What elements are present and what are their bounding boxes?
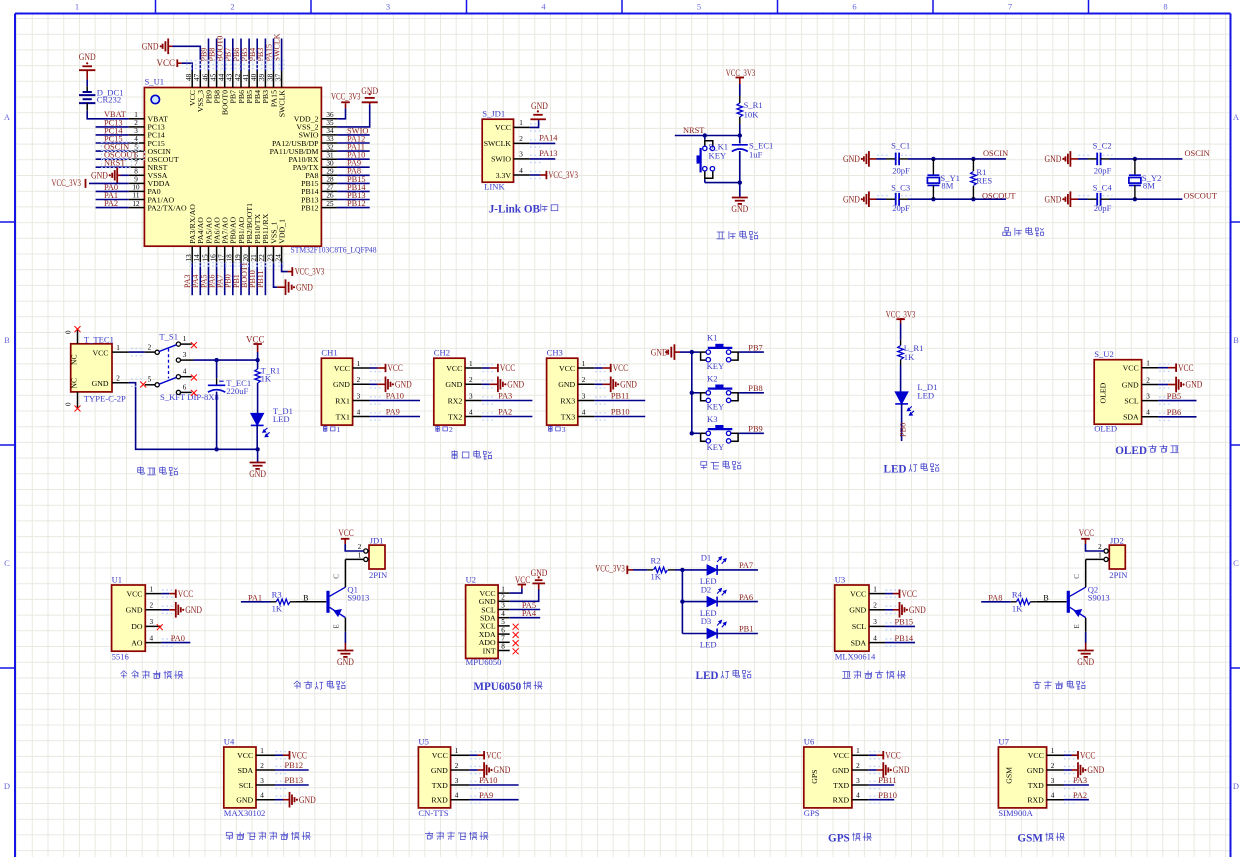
svg-text:2: 2 (134, 119, 138, 127)
svg-text:SWCLK: SWCLK (272, 33, 281, 61)
svg-text:PA3: PA3 (1073, 776, 1087, 785)
svg-text:46: 46 (201, 73, 209, 81)
svg-text:40: 40 (250, 73, 258, 81)
svg-text:12: 12 (132, 200, 140, 208)
svg-text:45: 45 (209, 73, 217, 81)
svg-text:4: 4 (856, 792, 860, 800)
svg-text:2: 2 (357, 376, 361, 384)
svg-text:22: 22 (258, 254, 266, 262)
svg-text:4: 4 (501, 610, 505, 618)
svg-text:VDD_1: VDD_1 (277, 219, 286, 244)
svg-text:PB0: PB0 (898, 423, 907, 437)
svg-text:43: 43 (226, 73, 234, 81)
svg-text:GND: GND (909, 605, 926, 615)
svg-text:VCC: VCC (902, 589, 917, 599)
svg-text:OLED: OLED (1115, 445, 1147, 457)
svg-text:S_U1: S_U1 (145, 77, 165, 87)
svg-text:2: 2 (449, 425, 453, 434)
svg-text:PA3: PA3 (498, 392, 512, 401)
svg-text:U5: U5 (418, 737, 429, 747)
svg-text:SWIO: SWIO (491, 155, 511, 164)
svg-text:SDA: SDA (851, 638, 867, 647)
svg-text:GND: GND (236, 796, 253, 805)
svg-text:PB10: PB10 (878, 791, 897, 800)
svg-text:1: 1 (582, 360, 586, 368)
svg-text:1: 1 (358, 551, 362, 559)
svg-text:6: 6 (852, 2, 856, 12)
svg-text:2: 2 (582, 376, 586, 384)
svg-text:2: 2 (455, 762, 459, 770)
svg-text:3: 3 (260, 777, 264, 785)
svg-text:19: 19 (234, 254, 242, 262)
svg-text:1: 1 (519, 119, 523, 127)
svg-text:LED: LED (696, 670, 719, 682)
svg-text:A: A (1233, 112, 1240, 122)
svg-text:3: 3 (519, 151, 523, 159)
svg-text:11: 11 (133, 192, 140, 200)
svg-text:D1: D1 (701, 553, 712, 563)
svg-text:S_KFT DIP-8X8: S_KFT DIP-8X8 (160, 392, 219, 402)
svg-text:36: 36 (326, 111, 334, 119)
svg-text:GND: GND (79, 52, 96, 62)
svg-text:6: 6 (183, 383, 187, 391)
svg-text:5: 5 (697, 2, 701, 12)
svg-text:VCC: VCC (388, 363, 403, 373)
svg-text:1: 1 (469, 360, 473, 368)
svg-text:4: 4 (455, 792, 459, 800)
svg-text:PA6: PA6 (739, 593, 753, 602)
svg-text:TXD: TXD (833, 781, 849, 790)
svg-text:GND: GND (1045, 154, 1062, 164)
svg-text:GND: GND (185, 605, 202, 615)
svg-text:PB8: PB8 (748, 384, 762, 393)
svg-text:E: E (1073, 624, 1081, 628)
svg-text:34: 34 (326, 127, 334, 135)
svg-text:PB14: PB14 (895, 634, 914, 643)
svg-text:T_TEC1: T_TEC1 (84, 334, 114, 344)
svg-text:GND: GND (620, 380, 637, 390)
svg-text:U4: U4 (224, 737, 235, 747)
svg-text:3: 3 (134, 127, 138, 135)
svg-text:OLED: OLED (1099, 382, 1108, 403)
svg-text:PA10: PA10 (386, 392, 404, 401)
svg-text:8: 8 (134, 168, 138, 176)
svg-text:PA2/TX/AO: PA2/TX/AO (148, 203, 188, 212)
svg-text:PA4: PA4 (522, 609, 537, 618)
svg-text:TX3: TX3 (561, 412, 575, 421)
svg-text:GND: GND (1122, 380, 1139, 389)
svg-text:GND: GND (395, 380, 412, 390)
svg-text:VCC: VCC (338, 528, 353, 538)
svg-text:GPS: GPS (828, 833, 850, 845)
svg-text:5: 5 (501, 618, 505, 626)
svg-text:3: 3 (582, 392, 586, 400)
svg-text:PB1: PB1 (739, 625, 753, 634)
svg-text:3: 3 (469, 392, 473, 400)
svg-text:VCC_3V3: VCC_3V3 (886, 310, 916, 320)
svg-text:RX1: RX1 (335, 396, 350, 405)
svg-text:VCC: VCC (92, 348, 108, 357)
svg-text:1K: 1K (904, 352, 915, 362)
svg-text:PB11: PB11 (611, 392, 629, 401)
svg-text:GND: GND (1186, 380, 1203, 390)
svg-text:PA13: PA13 (539, 149, 557, 158)
svg-text:VCC: VCC (515, 575, 530, 585)
svg-text:GND: GND (731, 204, 748, 214)
svg-text:T_S1: T_S1 (159, 331, 178, 341)
svg-text:R4: R4 (1012, 589, 1023, 599)
svg-text:2PIN: 2PIN (369, 570, 388, 580)
svg-text:GND: GND (832, 766, 849, 775)
svg-text:2: 2 (116, 374, 120, 382)
svg-text:3: 3 (562, 425, 566, 434)
svg-text:24: 24 (274, 254, 282, 262)
svg-text:GND: GND (558, 380, 575, 389)
svg-text:GND: GND (361, 86, 378, 96)
svg-text:1K: 1K (261, 374, 272, 384)
svg-text:VCC: VCC (237, 751, 253, 760)
svg-text:7: 7 (501, 635, 505, 643)
svg-text:INT: INT (483, 646, 496, 655)
svg-text:KEY: KEY (709, 151, 727, 161)
svg-text:RXD: RXD (431, 796, 448, 805)
svg-text:20: 20 (242, 254, 250, 262)
svg-text:PB11: PB11 (256, 271, 265, 289)
svg-text:4: 4 (357, 408, 361, 416)
svg-text:SCL: SCL (239, 781, 254, 790)
svg-text:PB15: PB15 (895, 618, 914, 627)
svg-text:PA10: PA10 (479, 776, 497, 785)
svg-text:PA2: PA2 (498, 408, 512, 417)
svg-text:VCC: VCC (1123, 364, 1139, 373)
svg-text:VCC: VCC (613, 363, 628, 373)
svg-text:GND: GND (843, 194, 860, 204)
svg-text:3: 3 (455, 777, 459, 785)
svg-text:PB12: PB12 (285, 761, 304, 770)
svg-text:PB12: PB12 (347, 199, 366, 208)
svg-text:PB10: PB10 (611, 408, 630, 417)
svg-text:VCC_3V3: VCC_3V3 (331, 92, 361, 102)
svg-text:D: D (4, 781, 10, 791)
svg-text:GND: GND (431, 766, 448, 775)
svg-text:LINK: LINK (484, 181, 505, 191)
svg-text:VCC: VCC (1178, 363, 1193, 373)
svg-text:OLED: OLED (1094, 424, 1117, 434)
svg-text:PB13: PB13 (285, 776, 304, 785)
svg-text:1: 1 (856, 747, 860, 755)
svg-text:GND: GND (249, 469, 266, 479)
svg-text:SIM900A: SIM900A (998, 808, 1033, 818)
svg-text:GSM: GSM (1017, 833, 1043, 845)
svg-text:1: 1 (1051, 747, 1055, 755)
svg-text:PB7: PB7 (748, 343, 762, 352)
svg-text:4: 4 (260, 792, 264, 800)
svg-text:GND: GND (843, 154, 860, 164)
svg-text:VCC: VCC (500, 363, 515, 373)
svg-text:JD2: JD2 (1110, 536, 1124, 546)
svg-text:4: 4 (582, 408, 586, 416)
svg-text:R2: R2 (651, 556, 661, 566)
svg-text:PA7: PA7 (739, 561, 753, 570)
svg-text:U3: U3 (835, 575, 846, 585)
svg-text:OSCIN: OSCIN (983, 149, 1008, 158)
svg-text:KEY: KEY (707, 361, 725, 371)
svg-text:41: 41 (242, 73, 250, 81)
svg-text:2: 2 (856, 762, 860, 770)
svg-text:NC: NC (70, 354, 79, 365)
svg-text:JD1: JD1 (370, 536, 384, 546)
svg-text:RXD: RXD (833, 796, 850, 805)
svg-text:2: 2 (519, 135, 523, 143)
svg-text:1: 1 (337, 425, 341, 434)
svg-text:GND: GND (142, 41, 159, 51)
svg-text:18: 18 (226, 254, 234, 262)
svg-text:GND: GND (1045, 194, 1062, 204)
svg-text:VCC: VCC (432, 751, 448, 760)
svg-text:VCC: VCC (833, 751, 849, 760)
svg-text:B: B (4, 335, 10, 345)
svg-text:D3: D3 (701, 616, 712, 626)
svg-text:B: B (1233, 335, 1239, 345)
svg-text:GND: GND (1087, 765, 1104, 775)
svg-text:1: 1 (1146, 360, 1150, 368)
svg-text:CH3: CH3 (547, 347, 563, 357)
svg-text:C: C (1233, 558, 1239, 568)
svg-text:VCC: VCC (559, 364, 575, 373)
svg-text:S_C2: S_C2 (1093, 141, 1112, 151)
svg-text:GPS: GPS (810, 769, 819, 783)
svg-text:4: 4 (469, 408, 473, 416)
svg-text:7: 7 (134, 159, 138, 167)
svg-text:3: 3 (1051, 777, 1055, 785)
svg-text:RX2: RX2 (448, 396, 463, 405)
svg-text:2: 2 (501, 594, 505, 602)
svg-text:2: 2 (1146, 376, 1150, 384)
svg-text:3: 3 (183, 351, 187, 359)
svg-text:39: 39 (258, 73, 266, 81)
svg-text:13: 13 (185, 254, 193, 262)
svg-text:3: 3 (873, 618, 877, 626)
svg-text:2: 2 (469, 376, 473, 384)
svg-text:S9013: S9013 (1088, 592, 1110, 602)
svg-text:VCC: VCC (246, 334, 265, 344)
svg-text:GND: GND (849, 606, 866, 615)
svg-text:CH1: CH1 (321, 347, 337, 357)
svg-text:GND: GND (92, 379, 109, 388)
svg-text:PA9: PA9 (479, 791, 493, 800)
svg-text:PB11: PB11 (878, 776, 896, 785)
svg-text:3: 3 (357, 392, 361, 400)
svg-text:KEY: KEY (707, 402, 725, 412)
svg-text:STM32F103C8T6_LQFP48: STM32F103C8T6_LQFP48 (291, 245, 377, 254)
svg-text:PB5: PB5 (1167, 392, 1181, 401)
svg-text:VCC: VCC (178, 589, 193, 599)
svg-text:VCC: VCC (1080, 750, 1095, 760)
svg-text:MAX30102: MAX30102 (224, 808, 266, 818)
svg-text:0: 0 (65, 402, 73, 406)
svg-text:GND: GND (531, 568, 548, 578)
svg-text:10K: 10K (744, 109, 760, 119)
svg-text:LED: LED (273, 414, 290, 424)
svg-text:OSCOUT: OSCOUT (1184, 191, 1218, 200)
svg-text:1: 1 (260, 747, 264, 755)
svg-text:GPS: GPS (804, 808, 820, 818)
svg-text:PA14: PA14 (539, 134, 558, 143)
svg-text:3: 3 (1146, 392, 1150, 400)
svg-text:GND: GND (126, 606, 143, 615)
svg-text:RX3: RX3 (560, 396, 575, 405)
svg-text:GND: GND (1027, 766, 1044, 775)
svg-text:8M: 8M (941, 181, 953, 191)
svg-text:15: 15 (201, 254, 209, 262)
svg-text:SWCLK: SWCLK (484, 139, 512, 148)
svg-text:OSCIN: OSCIN (1185, 149, 1210, 158)
svg-text:U7: U7 (998, 737, 1009, 747)
svg-text:OSCOUT: OSCOUT (982, 191, 1016, 200)
svg-text:8M: 8M (1143, 181, 1155, 191)
svg-text:VCC: VCC (495, 123, 511, 132)
svg-text:VCC: VCC (126, 589, 142, 598)
svg-text:CH2: CH2 (434, 347, 450, 357)
svg-text:GND: GND (333, 380, 350, 389)
svg-text:TYPE-C-2P: TYPE-C-2P (84, 393, 126, 403)
svg-text:PA2: PA2 (1073, 791, 1087, 800)
svg-text:CR232: CR232 (97, 95, 121, 105)
svg-text:1: 1 (501, 585, 505, 593)
svg-text:PA2: PA2 (104, 199, 118, 208)
svg-text:TXD: TXD (432, 781, 448, 790)
svg-text:30: 30 (326, 159, 334, 167)
svg-text:GND: GND (91, 171, 108, 181)
svg-text:3.3V: 3.3V (496, 171, 512, 180)
svg-text:VCC: VCC (1028, 751, 1044, 760)
svg-text:20pF: 20pF (1094, 203, 1112, 213)
svg-text:0: 0 (65, 330, 73, 334)
svg-text:K2: K2 (707, 373, 718, 383)
svg-text:8: 8 (501, 643, 505, 651)
svg-text:S9013: S9013 (347, 592, 369, 602)
svg-text:VCC: VCC (850, 589, 866, 598)
svg-text:6: 6 (501, 626, 505, 634)
svg-text:GND: GND (337, 657, 354, 667)
svg-text:U6: U6 (804, 737, 815, 747)
svg-text:28: 28 (326, 176, 334, 184)
svg-text:RES: RES (976, 176, 992, 186)
svg-text:1: 1 (116, 344, 120, 352)
svg-text:26: 26 (326, 192, 334, 200)
svg-text:21: 21 (250, 254, 258, 262)
svg-text:VCC: VCC (885, 750, 900, 760)
svg-text:C: C (333, 574, 341, 579)
svg-text:2: 2 (230, 2, 234, 12)
svg-text:1: 1 (150, 585, 154, 593)
svg-text:S_C1: S_C1 (891, 141, 910, 151)
svg-text:GND: GND (296, 282, 313, 292)
svg-text:42: 42 (234, 73, 242, 81)
svg-text:MPU6050: MPU6050 (473, 681, 521, 693)
svg-text:1K: 1K (1012, 604, 1023, 614)
svg-text:4: 4 (1051, 792, 1055, 800)
svg-text:9: 9 (134, 176, 138, 184)
svg-text:20pF: 20pF (892, 166, 910, 176)
svg-text:B: B (303, 593, 308, 602)
svg-text:2: 2 (1051, 762, 1055, 770)
svg-text:7: 7 (1008, 2, 1012, 12)
svg-text:31: 31 (326, 151, 334, 159)
svg-text:LED: LED (884, 463, 907, 475)
svg-text:8: 8 (1163, 2, 1167, 12)
svg-text:GND: GND (1077, 657, 1094, 667)
svg-text:1K: 1K (272, 604, 283, 614)
svg-text:3: 3 (386, 2, 390, 12)
svg-text:LED: LED (917, 391, 934, 401)
svg-text:GND: GND (507, 380, 524, 390)
svg-text:NRST: NRST (683, 126, 704, 135)
svg-text:35: 35 (326, 119, 334, 127)
svg-text:27: 27 (326, 184, 334, 192)
svg-text:48: 48 (185, 73, 193, 81)
svg-text:2: 2 (358, 543, 362, 551)
svg-text:37: 37 (274, 73, 282, 81)
svg-text:5516: 5516 (112, 651, 130, 661)
svg-text:K3: K3 (707, 414, 718, 424)
svg-text:GND: GND (445, 380, 462, 389)
svg-text:GND: GND (299, 795, 316, 805)
svg-text:KEY: KEY (707, 442, 725, 452)
svg-text:CN-TTS: CN-TTS (418, 808, 448, 818)
svg-text:20pF: 20pF (1094, 166, 1112, 176)
svg-text:SDA: SDA (1123, 413, 1139, 422)
svg-text:PB6: PB6 (1167, 408, 1181, 417)
svg-text:MPU6050: MPU6050 (466, 657, 502, 667)
svg-text:2: 2 (260, 762, 264, 770)
svg-text:U2: U2 (466, 575, 477, 585)
svg-text:1uF: 1uF (749, 149, 763, 159)
svg-text:K1: K1 (707, 333, 718, 343)
svg-text:SCL: SCL (1124, 396, 1139, 405)
svg-text:SDA: SDA (238, 766, 254, 775)
svg-text:TX2: TX2 (448, 412, 462, 421)
svg-text:S_U2: S_U2 (1094, 349, 1114, 359)
svg-text:4: 4 (519, 167, 523, 175)
svg-text:44: 44 (218, 73, 226, 81)
svg-text:A: A (4, 112, 11, 122)
svg-text:VCC: VCC (156, 58, 175, 68)
svg-text:2: 2 (150, 602, 154, 610)
svg-text:4: 4 (183, 368, 187, 376)
svg-text:23: 23 (266, 254, 274, 262)
svg-text:VCC: VCC (334, 364, 350, 373)
svg-text:S_JD1: S_JD1 (482, 108, 505, 118)
svg-text:SWCLK: SWCLK (277, 90, 286, 118)
svg-text:VCC_3V3: VCC_3V3 (726, 68, 756, 78)
svg-text:5: 5 (148, 376, 152, 384)
svg-text:J-Link OB: J-Link OB (489, 204, 541, 216)
svg-text:220uF: 220uF (226, 386, 248, 396)
svg-text:U1: U1 (112, 575, 123, 585)
svg-text:S_C4: S_C4 (1093, 183, 1113, 193)
svg-text:4: 4 (150, 634, 154, 642)
svg-text:RXD: RXD (1027, 796, 1044, 805)
svg-text:2: 2 (148, 344, 152, 352)
svg-text:33: 33 (326, 135, 334, 143)
svg-text:1: 1 (1098, 551, 1102, 559)
svg-text:VCC: VCC (292, 750, 307, 760)
svg-text:10: 10 (132, 184, 140, 192)
svg-text:MLX90614: MLX90614 (835, 651, 876, 661)
svg-text:S_C3: S_C3 (891, 183, 910, 193)
svg-text:17: 17 (218, 254, 226, 262)
